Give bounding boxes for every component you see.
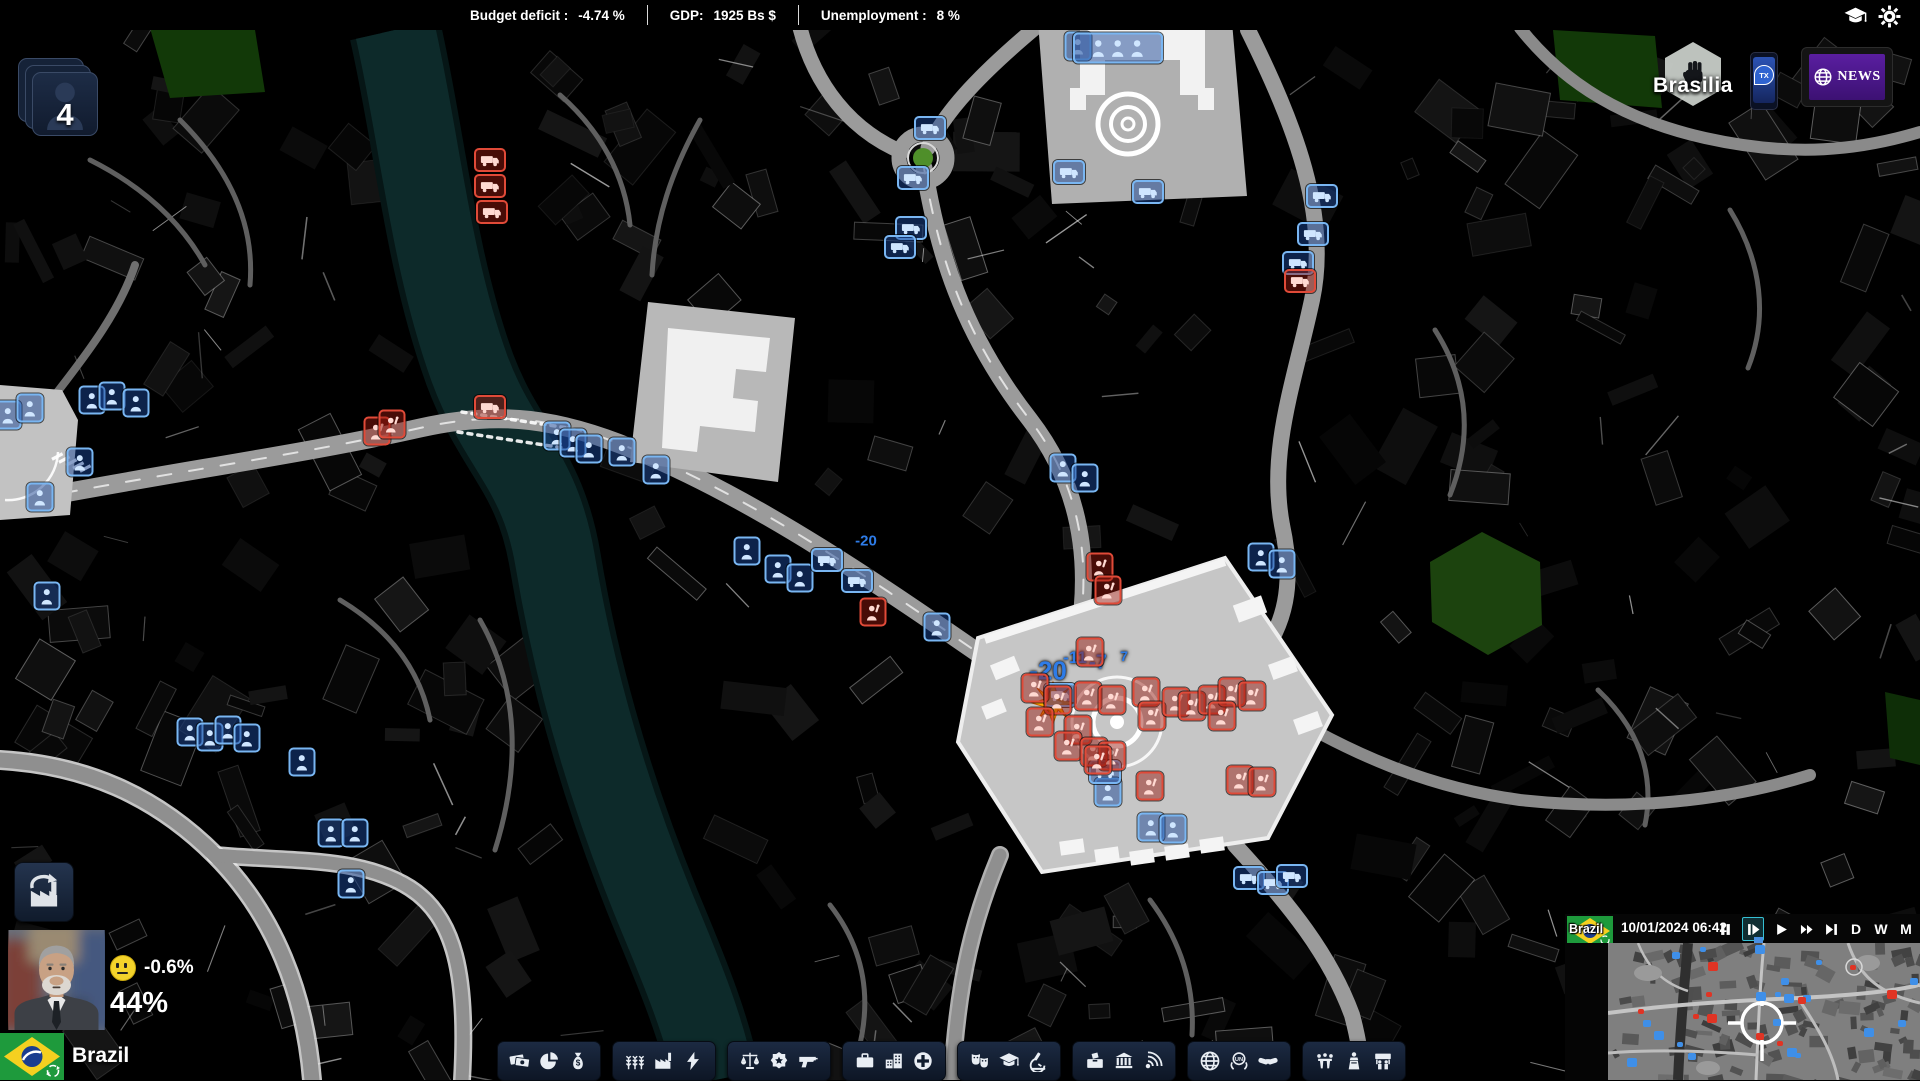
minimap-police-dot [1677,1042,1683,1047]
news-button[interactable]: NEWS [1801,47,1893,107]
game-screen: { "top_bar": { "budget_label": "Budget d… [0,0,1920,1080]
minimap-panel: Brazil 10/01/2024 06:42 DWM [1565,914,1920,1080]
rioter-marker[interactable] [1055,732,1082,761]
police-person-marker[interactable] [338,870,365,899]
research-icon[interactable] [1027,1050,1049,1072]
minimap-police-dot [1910,978,1918,985]
speed-day-button[interactable]: D [1848,919,1864,939]
rioter-marker[interactable] [379,410,406,439]
leader-portrait[interactable] [8,930,105,1030]
toolbar-group-production [612,1041,716,1081]
speed-fast-forward-button[interactable] [1798,919,1814,939]
police-person-marker[interactable] [576,435,603,464]
speed-week-button[interactable]: W [1873,919,1889,939]
energy-icon[interactable] [682,1050,704,1072]
player-panel: -0.6% 44% Brazil [0,925,260,1080]
minimap-police-dot [1864,1028,1874,1037]
toolbar-group-foreign: UN [1187,1041,1291,1081]
gdp-stat: GDP:1925 Bs $ [670,8,776,23]
social-movements-icon[interactable] [1372,1050,1394,1072]
minimap-police-dot [1756,992,1766,1001]
news-label: NEWS [1837,69,1880,85]
police-person-marker[interactable] [17,394,44,423]
riot-vehicle-marker[interactable] [476,200,508,224]
top-bar-separator [647,5,648,25]
toolbar-group-society [842,1041,946,1081]
rioter-marker[interactable] [1099,686,1126,715]
advisor-count: 4 [33,97,97,133]
rioter-marker[interactable] [1077,638,1104,667]
police-vehicle-marker[interactable] [841,569,873,593]
rioter-marker[interactable] [1095,576,1122,605]
rioter-marker[interactable] [1085,746,1112,775]
minimap-police-dot [1627,1058,1637,1067]
un-icon[interactable]: UN [1228,1050,1250,1072]
toolbar-group-security [727,1041,831,1081]
meetings-icon[interactable] [1314,1050,1336,1072]
health-icon[interactable] [912,1050,934,1072]
minimap-police-dot [1781,978,1789,985]
news-screen: NEWS [1809,54,1885,100]
rioter-marker[interactable] [1209,702,1236,731]
svg-text:$: $ [576,1059,581,1068]
agriculture-icon[interactable] [624,1050,646,1072]
rioter-marker[interactable] [1137,772,1164,801]
police-vehicle-marker[interactable] [1276,864,1308,888]
minimap-riot-dot [1708,962,1718,971]
minimap-police-dot [1784,994,1794,1003]
banknotes-icon[interactable] [509,1050,531,1072]
justice-icon[interactable] [739,1050,761,1072]
minimap-police-dot [1654,1031,1664,1040]
game-date: 10/01/2024 [1621,920,1689,935]
riot-vehicle-marker[interactable] [474,174,506,198]
minimap-left-strip [1565,943,1608,1080]
culture-icon[interactable] [969,1050,991,1072]
police-vehicle-marker[interactable] [914,116,946,140]
world-icon[interactable] [1199,1050,1221,1072]
unemployment-stat: Unemployment :8 % [821,8,960,23]
police-vehicle-marker[interactable] [1132,180,1164,204]
police-person-marker[interactable] [609,438,636,467]
defense-icon[interactable] [797,1050,819,1072]
police-vehicle-marker[interactable] [897,166,929,190]
speed-month-button[interactable]: M [1898,919,1914,939]
police-vehicle-marker[interactable] [884,235,916,259]
police-person-marker[interactable] [318,819,345,848]
minimap-riot-dot [1798,997,1806,1004]
rioter-marker[interactable] [1139,702,1166,731]
speed-play-button[interactable] [1773,919,1789,939]
minimap-country-label: Brazil [1569,922,1603,936]
minimap-police-dot [1775,992,1781,997]
toolbar-group-politics [1302,1041,1406,1081]
police-person-marker[interactable] [34,582,61,611]
police-person-marker[interactable] [643,456,670,485]
police-vehicle-marker[interactable] [811,548,843,572]
police-person-marker[interactable] [1072,464,1099,493]
city-name[interactable]: Brasilia [1653,74,1733,98]
top-stats-bar: Budget deficit :-4.74 % GDP:1925 Bs $ Un… [0,0,1920,30]
police-person-marker[interactable] [99,382,126,411]
housing-icon[interactable] [883,1050,905,1072]
riot-vehicle-marker[interactable] [474,395,506,419]
police-person-marker[interactable] [1160,815,1187,844]
police-vehicle-marker[interactable] [1297,222,1329,246]
minimap-police-dot [1755,945,1765,954]
minimap-riot-dot [1638,1009,1644,1014]
police-person-marker[interactable] [342,819,369,848]
minimap-riot-dot [1756,1033,1764,1040]
industry-view-button[interactable] [14,862,74,922]
advisor-card-front: 4 [32,72,98,136]
rioter-marker[interactable] [1075,682,1102,711]
police-icon[interactable] [768,1050,790,1072]
riot-vehicle-marker[interactable] [1284,269,1316,293]
minimap-riot-dot [1707,1014,1717,1023]
institutions-icon[interactable] [1113,1050,1135,1072]
police-person-marker[interactable] [234,724,261,753]
minimap-police-dot [1898,1020,1906,1027]
svg-text:UN: UN [1235,1057,1243,1063]
minimap-riot-dot [1850,965,1856,970]
labor-icon[interactable] [854,1050,876,1072]
toolbar-group-economy: $ [497,1041,601,1081]
speed-skip-forward-button[interactable] [1823,919,1839,939]
minimap-police-dot [1773,1019,1781,1026]
police-person-marker[interactable] [787,564,814,593]
police-person-marker[interactable] [289,748,316,777]
police-person-marker[interactable] [67,448,94,477]
minimap-riot-dot [1777,1041,1783,1046]
toolbar-group-culture [957,1041,1061,1081]
game-datetime: 10/01/2024 06:42 [1621,920,1727,935]
minimap-police-dot [1816,960,1822,965]
speed-controls: DWM [1717,917,1914,941]
brazil-flag[interactable] [0,1033,64,1080]
police-person-marker[interactable] [734,537,761,566]
budget-deficit-stat: Budget deficit :-4.74 % [470,8,625,23]
police-vehicle-marker[interactable] [1306,184,1338,208]
police-group-marker[interactable] [1073,33,1163,64]
media-icon[interactable] [1142,1050,1164,1072]
police-vehicle-marker[interactable] [1053,160,1085,184]
advisor-stack[interactable]: 4 [18,58,104,142]
police-person-marker[interactable] [123,389,150,418]
minimap-police-dot [1700,947,1706,952]
minimap-police-dot [1672,952,1680,959]
phone-message-bubble: TX [1754,65,1774,85]
mood-emoji-icon [110,955,136,981]
education-icon[interactable] [998,1050,1020,1072]
elections-icon[interactable] [1084,1050,1106,1072]
minimap[interactable] [1608,943,1920,1080]
rioter-marker[interactable] [860,598,887,627]
budget-pie-icon[interactable] [538,1050,560,1072]
police-person-marker[interactable] [27,483,54,512]
tax-bag-icon[interactable]: $ [567,1050,589,1072]
minimap-riot-dot [1887,990,1897,999]
police-person-marker[interactable] [1269,550,1296,579]
minimap-police-dot [1643,1020,1651,1027]
industry-icon[interactable] [653,1050,675,1072]
education-icon[interactable] [1843,4,1868,29]
speed-pause-button[interactable] [1717,919,1733,939]
minimap-riot-dot [1693,1014,1699,1019]
globe-icon [1813,67,1833,87]
minimap-riot-dot [1706,992,1712,997]
ministry-toolbar: $UN [497,1041,1406,1081]
phone-icon[interactable]: TX [1750,52,1778,110]
minimap-police-dot [1795,1053,1801,1058]
country-name[interactable]: Brazil [72,1044,129,1068]
minimap-police-dot [1688,1053,1696,1060]
popularity-change: -0.6% [144,957,194,979]
toolbar-group-state [1072,1041,1176,1081]
rioter-marker[interactable] [1239,682,1266,711]
rioter-marker[interactable] [1027,708,1054,737]
riot-vehicle-marker[interactable] [474,148,506,172]
rioter-marker[interactable] [1249,768,1276,797]
settings-icon[interactable] [1877,4,1902,29]
government-icon[interactable] [1343,1050,1365,1072]
diplomacy-icon[interactable] [1257,1050,1279,1072]
approval-rating: 44% [110,987,168,1020]
top-bar-separator [798,5,799,25]
police-person-marker[interactable] [924,613,951,642]
